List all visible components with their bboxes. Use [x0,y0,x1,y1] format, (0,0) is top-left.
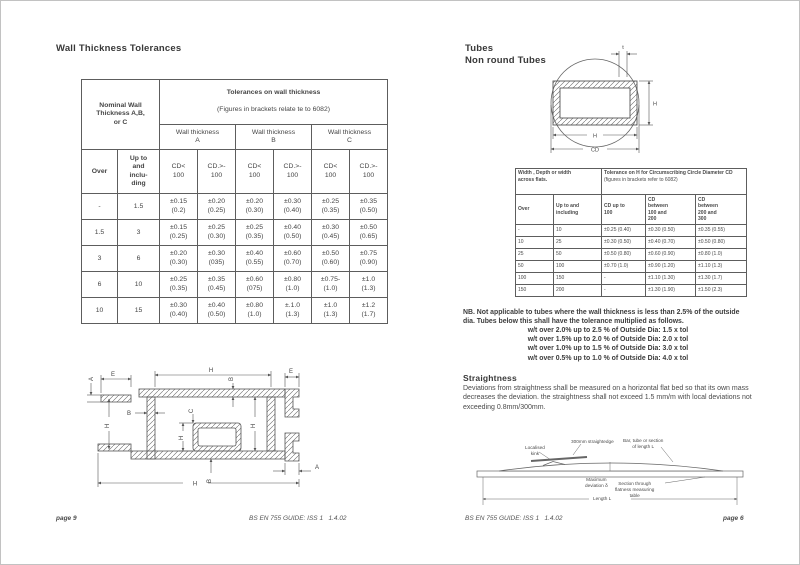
table-cell: ±0.25 (0.35) [160,272,198,298]
dim-label-c: C [189,408,195,413]
title-tubes: Tubes [465,43,493,54]
table-cell: ±0.80 (1.0) [236,298,274,324]
label-straightedge: 300mm straightedge [571,439,614,445]
table-cell: 1.5 [82,220,118,246]
title-non-round-tubes: Non round Tubes [465,55,546,66]
main-header-title: Tolerances on wall thickness [161,89,386,97]
right-footer-doc-ref: BS EN 755 GUIDE: ISS 1 1.4.02 [465,515,563,522]
table-cell: ±0.40 (0.55) [236,246,274,272]
table-cell: ±1.2 (1.7) [350,298,388,324]
dim-label-h: H [251,424,257,428]
profile-cross-section-diagram: E H E A B B H C H H B A H [43,341,355,496]
table-cell: ±0.15 (0.2) [160,194,198,220]
cc-main-header-title: Tolerance on H for Circumscribing Circle… [604,170,733,176]
label-localised-kink: Localised kink [525,445,545,457]
dim-label-h: H [179,436,185,440]
cc-corner-header: Width , Depth or width across flats. [516,169,602,195]
table-cell: ±0.60 (0.90) [646,249,696,261]
table-cell: 150 [516,285,554,297]
table-cell: ±0.80 (1.0) [696,249,747,261]
dim-label-a: A [315,465,319,471]
dim-label-h: H [105,424,111,428]
table-cell: 200 [554,285,602,297]
table-cell: ±0.25 (0.40) [602,225,646,237]
table-cell: ±0.25 (0.35) [312,194,350,220]
main-header-cell: Tolerances on wall thickness (Figures in… [160,80,388,125]
table-cell: 3 [82,246,118,272]
table-cell: ±0.70 (1.0) [602,261,646,273]
table-cell: ±0.60 (0.70) [274,246,312,272]
table-cell: 6 [118,246,160,272]
dim-label-h: H [653,102,657,108]
table-cell: ±0.15 (0.25) [160,220,198,246]
table-cell: ±0.50 (0.65) [350,220,388,246]
nb-note: NB. Not applicable to tubes where the wa… [463,308,753,363]
table-cell: 25 [516,249,554,261]
table-row: 610±0.25 (0.35)±0.35 (0.45)±0.60 (075)±0… [82,272,388,298]
table-cell: 50 [554,249,602,261]
table-cell: ±0.30 (0.40) [274,194,312,220]
nb-rule-1: w/t over 2.0% up to 2.5 % of Outside Dia… [463,326,753,335]
nb-rule-3: w/t over 1.0% up to 1.5 % of Outside Dia… [463,344,753,353]
table-cell: ±1.30 (1.7) [696,273,747,285]
table-cell: ±0.75- (1.0) [312,272,350,298]
table-cell: 10 [82,298,118,324]
wall-thickness-tolerance-table: Nominal Wall Thickness A,B, or C Toleran… [81,79,388,324]
table-cell: ±0.30 (0.50) [602,237,646,249]
right-page-title: TubesNon round Tubes [465,43,546,68]
table-cell: ±.1.0 (1.3) [274,298,312,324]
dim-label-a: A [89,377,95,381]
label-section-through-table: Section through flatness measuring table [615,481,654,499]
straightness-heading: Straightness [463,373,517,383]
table-cell: ±0.75 (0.90) [350,246,388,272]
group-header-b: Wall thickness B [236,125,312,150]
cc-col-header-upto: Up to and including [554,195,602,225]
table-cell: ±0.25 (0.35) [236,220,274,246]
table-cell: - [516,225,554,237]
cc-main-header-subtitle: (figures in brackets refer to 6082) [604,177,678,183]
table-cell: ±0.35 (0.50) [350,194,388,220]
table-row: -10±0.25 (0.40)±0.30 (0.50)±0.35 (0.55) [516,225,747,237]
col-header-cd: CD.>- 100 [350,150,388,194]
table-cell: ±0.60 (075) [236,272,274,298]
dim-label-h: H [209,368,213,374]
cc-main-header: Tolerance on H for Circumscribing Circle… [602,169,747,195]
table-cell: 10 [516,237,554,249]
table-cell: ±0.35 (0.45) [198,272,236,298]
table-cell: ±0.50 (0.80) [696,237,747,249]
tolerance-table-body: -1.5±0.15 (0.2)±0.20 (0.25)±0.20 (0.30)±… [82,194,388,324]
dim-label-e: E [111,372,115,378]
dim-label-e: E [289,369,293,375]
col-header-cd: CD.>- 100 [274,150,312,194]
cc-col-header-cd2: CD between 100 and 200 [646,195,696,225]
corner-header-cell: Nominal Wall Thickness A,B, or C [82,80,160,150]
table-cell: ±0.30 (0.45) [312,220,350,246]
table-row: -1.5±0.15 (0.2)±0.20 (0.25)±0.20 (0.30)±… [82,194,388,220]
table-cell: ±0.30 (035) [198,246,236,272]
table-row: 1015±0.30 (0.40)±0.40 (0.50)±0.80 (1.0)±… [82,298,388,324]
table-cell: 10 [554,225,602,237]
table-cell: ±0.35 (0.55) [696,225,747,237]
table-cell: ±0.40 (0.50) [274,220,312,246]
table-cell: - [602,285,646,297]
table-row: 1.53±0.15 (0.25)±0.25 (0.30)±0.25 (0.35)… [82,220,388,246]
col-header-cd: CD< 100 [236,150,274,194]
table-cell: ±1.0 (1.3) [350,272,388,298]
table-cell: ±0.25 (0.30) [198,220,236,246]
table-cell: ±0.90 (1.20) [646,261,696,273]
cc-col-header-over: Over [516,195,554,225]
table-row: 100150-±1.10 (1.30)±1.30 (1.7) [516,273,747,285]
table-cell: ±0.20 (0.25) [198,194,236,220]
table-cell: ±0.40 (0.70) [646,237,696,249]
table-cell: - [602,273,646,285]
non-round-tube-diagram: t H H CD [545,41,661,165]
table-cell: ±1.30 (1.90) [646,285,696,297]
table-cell: ±1.0 (1.3) [312,298,350,324]
col-header-cd: CD.>- 100 [198,150,236,194]
cc-col-header-cd3: CD between 200 and 300 [696,195,747,225]
table-cell: ±0.20 (0.30) [160,246,198,272]
label-maximum-deviation: Maximum deviation δ [585,477,608,489]
dim-label-b: B [127,411,131,417]
table-cell: ±0.30 (0.40) [160,298,198,324]
dim-label-h: H [193,482,197,488]
table-cell: 100 [554,261,602,273]
table-cell: 10 [118,272,160,298]
col-header-over: Over [82,150,118,194]
table-cell: ±0.80 (1.0) [274,272,312,298]
col-header-upto: Up to and inclu- ding [118,150,160,194]
straightness-paragraph: Deviations from straightness shall be me… [463,384,755,412]
group-header-a: Wall thickness A [160,125,236,150]
table-cell: 15 [118,298,160,324]
table-cell: ±0.30 (0.50) [646,225,696,237]
table-cell: 50 [516,261,554,273]
left-footer-doc-ref: BS EN 755 GUIDE: ISS 1 1.4.02 [249,515,347,522]
table-cell: 6 [82,272,118,298]
nb-intro: NB. Not applicable to tubes where the wa… [463,308,753,326]
left-page-title: Wall Thickness Tolerances [56,43,181,54]
table-cell: ±1.50 (2.3) [696,285,747,297]
cc-col-header-cd1: CD up to 100 [602,195,646,225]
table-cell: ±0.40 (0.50) [198,298,236,324]
table-cell: 100 [516,273,554,285]
table-cell: ±1.10 (1.30) [646,273,696,285]
table-row: 2550±0.50 (0.80)±0.60 (0.90)±0.80 (1.0) [516,249,747,261]
cc-table-body: -10±0.25 (0.40)±0.30 (0.50)±0.35 (0.55)1… [516,225,747,297]
nb-rule-2: w/t over 1.5% up to 2.0 % of Outside Dia… [463,335,753,344]
table-cell: ±0.50 (0.80) [602,249,646,261]
circumscribing-circle-tolerance-table: Width , Depth or width across flats. Tol… [515,168,747,297]
table-cell: ±0.20 (0.30) [236,194,274,220]
table-cell: 3 [118,220,160,246]
right-page-number: page 6 [723,515,744,522]
document-page-spread: Wall Thickness Tolerances Nominal Wall T… [0,0,800,565]
col-header-cd: CD< 100 [312,150,350,194]
nb-rule-4: w/t over 0.5% up to 1.0 % of Outside Dia… [463,354,753,363]
dim-label-b: B [229,377,235,381]
dim-label-h: H [593,134,597,140]
table-row: 1025±0.30 (0.50)±0.40 (0.70)±0.50 (0.80) [516,237,747,249]
table-cell: 1.5 [118,194,160,220]
dim-label-cd: CD [591,148,599,154]
table-row: 36±0.20 (0.30)±0.30 (035)±0.40 (0.55)±0.… [82,246,388,272]
label-bar-tube-section: Bar, tube or section of length L [623,438,663,450]
table-row: 50100±0.70 (1.0)±0.90 (1.20)±1.10 (1.3) [516,261,747,273]
left-page-number: page 9 [56,515,77,522]
table-cell: 150 [554,273,602,285]
main-header-subtitle: (Figures in brackets relate te to 6082) [161,106,386,114]
table-cell: ±1.10 (1.3) [696,261,747,273]
group-header-c: Wall thickness C [312,125,388,150]
table-cell: 25 [554,237,602,249]
dim-label-b: B [207,479,213,483]
table-cell: - [82,194,118,220]
table-cell: ±0.50 (0.60) [312,246,350,272]
table-row: 150200-±1.30 (1.90)±1.50 (2.3) [516,285,747,297]
label-length-l: Length L [593,496,611,502]
dim-label-t: t [622,45,624,51]
col-header-cd: CD< 100 [160,150,198,194]
